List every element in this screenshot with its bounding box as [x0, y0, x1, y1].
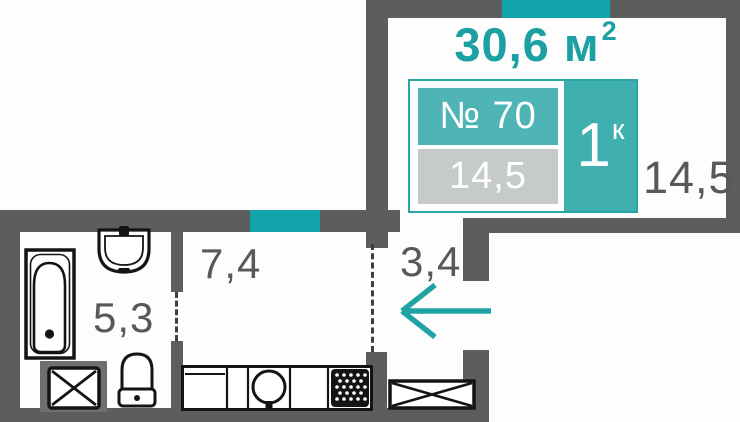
bathroom-door-dashed-line	[175, 292, 178, 341]
stove-icon	[331, 369, 369, 407]
wall-entry-jamb-top	[463, 218, 489, 281]
living-room-area-label: 14,5	[643, 152, 735, 204]
hallway-area-label: 3,4	[400, 238, 461, 286]
wall-room-bottom	[463, 218, 740, 233]
toilet-icon	[116, 351, 158, 409]
wall-bath-partition-top	[171, 232, 183, 292]
wardrobe-icon	[388, 379, 476, 410]
hallway-dashed-line	[371, 244, 374, 352]
wall-outer-left	[0, 210, 20, 422]
unit-room-count: 1к	[564, 81, 636, 211]
sink-icon	[95, 226, 153, 278]
bathroom-area-label: 5,3	[93, 294, 154, 342]
wall-junction-tab	[366, 232, 388, 248]
wall-room-left	[366, 0, 388, 232]
window-kitchen	[250, 210, 320, 232]
kitchen-area-label: 7,4	[200, 240, 261, 288]
total-area-value: 30,6	[454, 18, 549, 71]
room-count-suffix: к	[612, 114, 625, 147]
window-living-room	[502, 0, 610, 18]
total-area-unit: м	[564, 18, 600, 71]
wall-lower-top	[0, 210, 400, 232]
unit-info-badge: № 70 14,5 1к	[408, 79, 638, 213]
floor-plan: 30,6 м2 № 70 14,5 1к 14,5 5,3 7,4 3,4	[0, 0, 740, 422]
total-area-label: 30,6 м2	[420, 17, 650, 72]
bathtub-icon	[24, 248, 76, 360]
total-area-unit-sup: 2	[602, 16, 618, 46]
unit-badge-left-column: № 70 14,5	[410, 81, 564, 211]
room-count-value: 1	[576, 115, 610, 177]
kitchen-counter-icon	[181, 365, 373, 411]
unit-number: № 70	[418, 88, 558, 145]
entrance-arrow-icon	[395, 280, 491, 342]
unit-living-area: 14,5	[418, 149, 558, 204]
washing-machine-icon	[47, 366, 101, 410]
